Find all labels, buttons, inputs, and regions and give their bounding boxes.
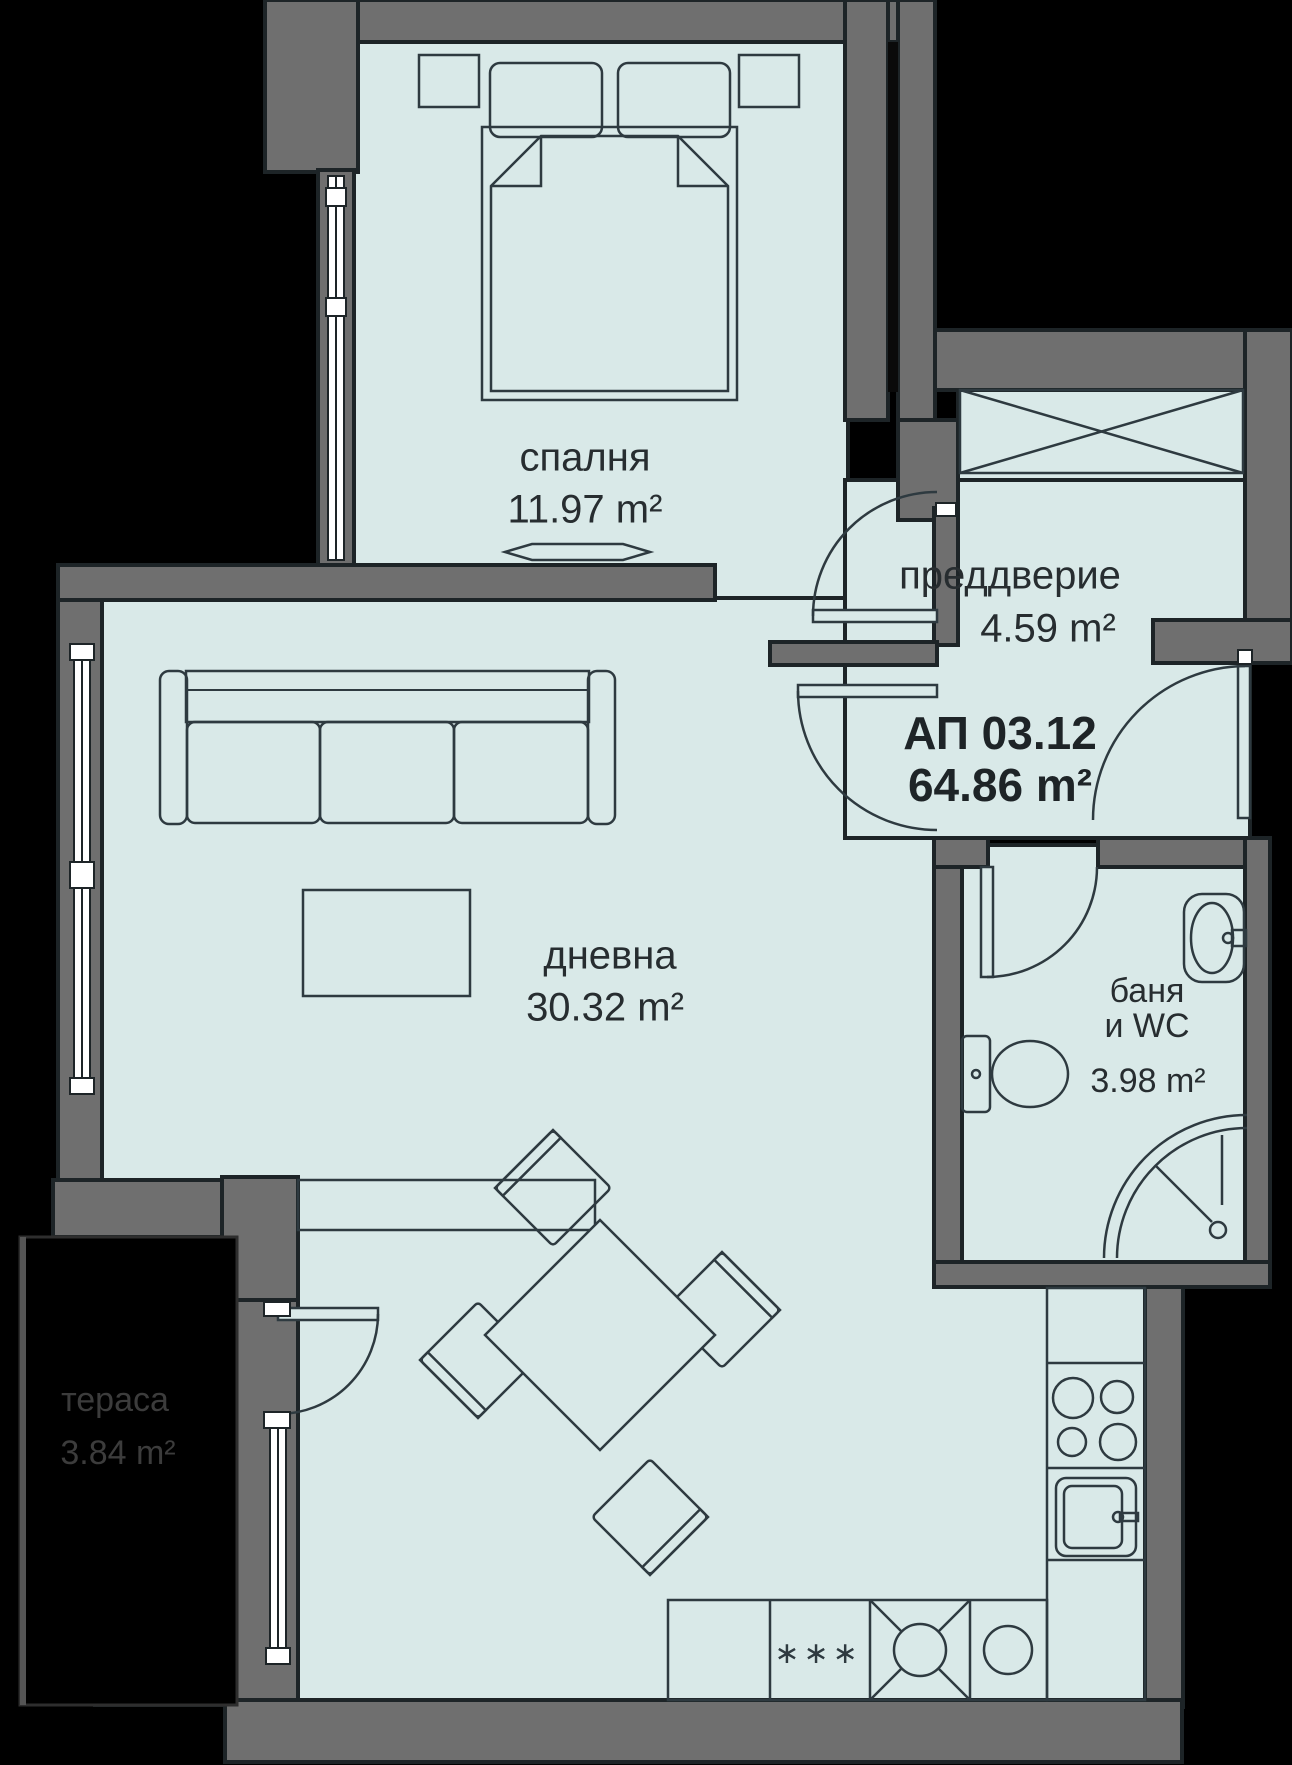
bedroom-area: 11.97 m² [508,488,663,532]
living-label: дневна [543,934,677,978]
terrace-edge [20,1237,26,1705]
window-bedroom [326,176,346,560]
room-bathroom-floor [960,845,1250,1262]
bedroom-label: спалня [520,436,651,480]
sink-unit [894,1624,946,1676]
floorplan: тераса 3.84 m² [0,0,1292,1765]
bathroom-label: баня [1110,972,1185,1010]
bedroom-sill [505,544,650,560]
hallway-label: преддверие [899,554,1121,598]
bathroom-area: 3.98 m² [1090,1062,1205,1100]
floorplan-canvas: тераса 3.84 m² [0,0,1292,1765]
apartment-area: 64.86 m² [908,759,1092,811]
living-area: 30.32 m² [526,986,684,1030]
window-living-upper [70,644,94,865]
terrace-label: тераса [61,1381,169,1419]
window-dining [266,1412,290,1664]
dishwasher-marks: ∗∗∗ [774,1637,861,1670]
hallway-area: 4.59 m² [980,607,1116,651]
apartment-id: АП 03.12 [903,707,1097,759]
window-living-lower [70,862,94,1094]
room-terrace: тераса 3.84 m² [20,1237,237,1705]
bathroom-label2: и WC [1104,1007,1189,1045]
terrace-area-label: 3.84 m² [60,1434,175,1472]
shaft-slit [888,42,898,392]
